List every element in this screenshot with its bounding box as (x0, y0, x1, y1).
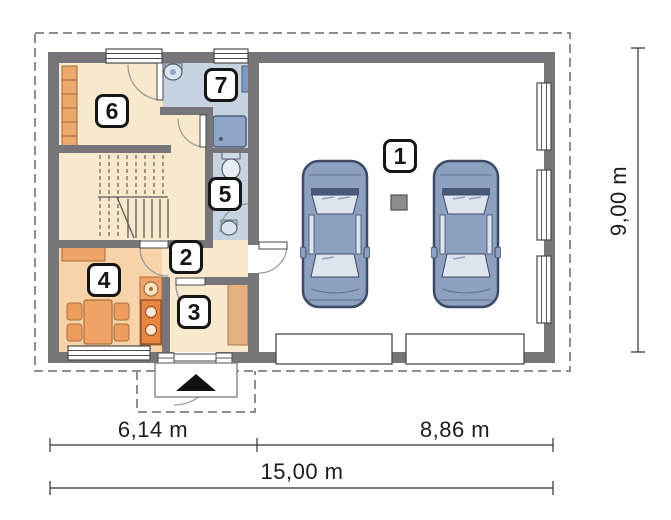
window (106, 49, 162, 63)
dimension-right-side: 9,00 m (606, 156, 632, 246)
chair (67, 303, 82, 320)
support-pillar (391, 195, 407, 210)
dining-table (84, 300, 112, 344)
room-label-6: 6 (95, 94, 129, 128)
room-number: 3 (188, 301, 201, 324)
room-label-3: 3 (177, 295, 211, 329)
window (68, 346, 150, 360)
garage-door (406, 334, 524, 364)
room-label-5: 5 (208, 177, 242, 211)
garage-partition-wall (248, 273, 259, 352)
window (537, 170, 551, 240)
toilet (222, 159, 240, 179)
garage-partition-wall (248, 63, 259, 245)
room-number: 6 (106, 100, 119, 123)
room-number: 1 (394, 145, 407, 168)
car-1 (300, 161, 370, 307)
dimension-bottom-total: 15,00 m (261, 459, 344, 485)
room-number: 7 (215, 74, 228, 97)
sidelight-window (216, 353, 232, 363)
room-label-7: 7 (204, 68, 238, 102)
car-2 (431, 161, 501, 307)
room6-wardrobe (62, 66, 77, 150)
room-label-2: 2 (169, 240, 203, 274)
dimension-bottom-left: 6,14 m (118, 417, 188, 443)
room-number: 2 (180, 246, 193, 269)
chair (114, 324, 129, 341)
dimension-bottom-right: 8,86 m (420, 417, 490, 443)
burner (146, 325, 157, 336)
shower (213, 116, 246, 147)
window (537, 256, 551, 323)
chair (67, 324, 82, 341)
porch (155, 363, 237, 397)
toilet-tank (222, 152, 240, 159)
room-number: 4 (98, 269, 111, 292)
garage-door (276, 334, 392, 364)
burner (146, 307, 157, 318)
sidelight-window (158, 353, 174, 363)
floor-plan: 1 2 3 4 5 6 7 6,14 m 8,86 m 15,00 m 9,00… (0, 0, 671, 520)
window (214, 49, 248, 63)
floor-plan-drawing (0, 0, 671, 520)
room-label-1: 1 (383, 139, 417, 173)
chair (114, 303, 129, 320)
room-number: 5 (219, 183, 232, 206)
window (537, 83, 551, 150)
vestibule-wardrobe (228, 283, 248, 345)
wc-sink (221, 221, 237, 235)
room-label-4: 4 (87, 263, 121, 297)
